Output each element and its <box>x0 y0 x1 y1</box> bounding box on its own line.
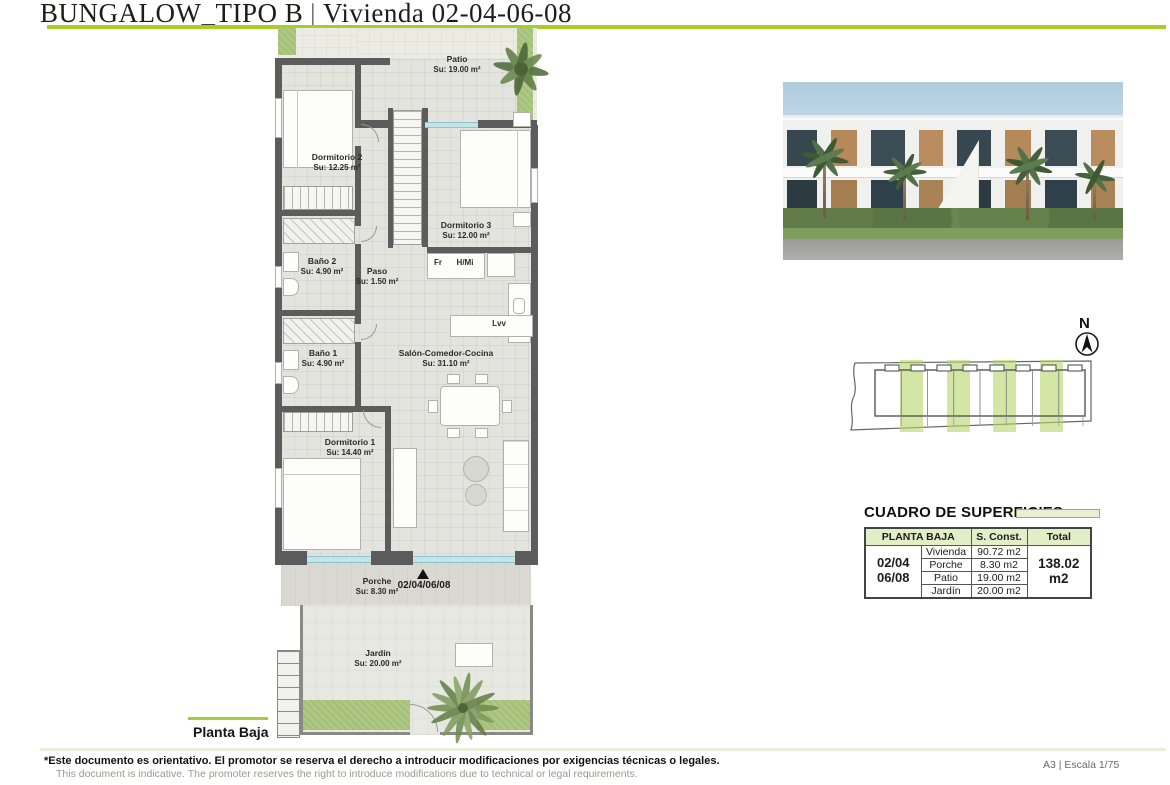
room-label-jardin: JardínSu: 20.00 m² <box>354 648 401 669</box>
site-plan <box>845 358 1097 436</box>
header-planta-baja: PLANTA BAJA <box>865 528 971 545</box>
palm-tree-icon <box>423 668 503 748</box>
wardrobe-dormitorio-1 <box>283 412 353 432</box>
room-label-dormitorio-2: Dormitorio 2Su: 12.25 m² <box>312 152 363 173</box>
appliance-label-fridge: Fr <box>434 258 442 267</box>
pouf <box>465 484 487 506</box>
page-title-unit: Vivienda 02-04-06-08 <box>323 0 572 28</box>
appliance-label-dishwasher: Lvv <box>492 319 506 328</box>
title-separator: | <box>310 0 316 28</box>
floor-plan: PatioSu: 19.00 m² Dormitorio 2Su: 12.25 … <box>275 28 540 748</box>
garden-fence-left <box>300 605 303 735</box>
entrance-marker-icon <box>417 569 429 579</box>
concept-cell: Jardín <box>921 584 971 598</box>
concept-cell: Patio <box>921 571 971 584</box>
chair <box>502 400 512 413</box>
window <box>275 98 282 138</box>
kitchen-appliance-box <box>487 253 515 277</box>
garden-fence-bottom <box>300 732 410 735</box>
disclaimer-en: This document is indicative. The promote… <box>56 768 638 780</box>
total-cell: 138.02 m2 <box>1027 545 1091 598</box>
room-label-paso: PasoSu: 1.50 m² <box>356 266 399 287</box>
room-label-bano-1: Baño 1Su: 4.90 m² <box>302 348 345 369</box>
palm-tree-icon <box>1003 146 1055 186</box>
shower-bano-2 <box>283 218 355 244</box>
window <box>275 266 282 288</box>
room-label-salon: Salón-Comedor-CocinaSu: 31.10 m² <box>399 348 493 369</box>
header-total: Total <box>1027 528 1091 545</box>
value-cell: 8.30 m2 <box>971 558 1027 571</box>
room-label-bano-2: Baño 2Su: 4.90 m² <box>301 256 344 277</box>
wall <box>422 108 428 247</box>
tv-sideboard <box>393 448 417 528</box>
brochure-page: BUNGALOW_TIPO B|Vivienda 02-04-06-08 <box>0 0 1170 785</box>
window <box>275 362 282 384</box>
window <box>531 168 538 203</box>
toilet-bano-2 <box>283 278 299 296</box>
kitchen-sink <box>513 298 525 314</box>
caption-accent-line <box>188 717 268 720</box>
nightstand <box>513 212 531 227</box>
toilet-bano-1 <box>283 376 299 394</box>
header-s-const: S. Const. <box>971 528 1027 545</box>
hall-closet <box>393 110 422 245</box>
wardrobe-dormitorio-2 <box>283 186 353 210</box>
palm-tree-icon <box>799 138 851 178</box>
room-label-porche: PorcheSu: 8.30 m² <box>356 576 399 597</box>
title-underline <box>47 25 1166 29</box>
plan-caption: Planta Baja <box>193 724 268 740</box>
bed-pillow <box>283 90 298 168</box>
sheet-scale-info: A3 | Escala 1/75 <box>1043 759 1119 771</box>
garden-green-left <box>300 700 410 730</box>
palm-tree-icon <box>881 154 929 190</box>
surfaces-title-accent-bar <box>1016 509 1100 518</box>
value-cell: 20.00 m2 <box>971 584 1027 598</box>
window <box>275 468 282 508</box>
disclaimer-es: *Este documento es orientativo. El promo… <box>44 755 720 767</box>
bed-pillow <box>283 458 361 475</box>
sink-bano-2 <box>283 252 299 272</box>
pouf <box>463 456 489 482</box>
chair <box>447 428 460 438</box>
nightstand <box>513 112 531 127</box>
chair <box>475 428 488 438</box>
surfaces-table-header-row: PLANTA BAJA S. Const. Total <box>865 528 1091 545</box>
wall <box>281 210 357 216</box>
value-cell: 19.00 m2 <box>971 571 1027 584</box>
patio-window <box>425 122 478 128</box>
room-label-dormitorio-3: Dormitorio 3Su: 12.00 m² <box>441 220 492 241</box>
porch-pillar <box>275 551 307 565</box>
garden-fence-right <box>530 605 533 735</box>
footer-separator-line <box>40 748 1166 751</box>
sofa <box>503 440 529 532</box>
room-label-dormitorio-1: Dormitorio 1Su: 14.40 m² <box>325 437 376 458</box>
appliance-label-oven-micro: H/Mi <box>457 258 474 267</box>
building-render-photo <box>783 82 1123 260</box>
shower-bano-1 <box>283 318 355 344</box>
porch-pillar <box>515 551 538 565</box>
concept-cell: Porche <box>921 558 971 571</box>
wall <box>355 58 361 128</box>
chair <box>447 374 460 384</box>
concept-cell: Vivienda <box>921 545 971 558</box>
surfaces-table: PLANTA BAJA S. Const. Total 02/04 06/08 … <box>864 527 1092 599</box>
palm-tree-icon <box>1073 160 1117 194</box>
table-row: 02/04 06/08 Vivienda 90.72 m2 138.02 m2 <box>865 545 1091 558</box>
entrance-code-label: 02/04/06/08 <box>398 580 451 591</box>
chair <box>475 374 488 384</box>
wall <box>281 310 357 316</box>
garden-furniture <box>455 643 493 667</box>
photo-road <box>783 239 1123 260</box>
bed-pillow <box>517 130 532 208</box>
sink-bano-1 <box>283 350 299 370</box>
value-cell: 90.72 m2 <box>971 545 1027 558</box>
photo-hedge <box>783 208 1123 230</box>
unit-line-1: 02/04 <box>877 555 910 570</box>
patio-tree-icon <box>488 32 554 106</box>
wall <box>385 406 391 565</box>
room-label-patio: PatioSu: 19.00 m² <box>433 54 480 75</box>
north-compass-icon <box>1073 330 1101 358</box>
chair <box>428 400 438 413</box>
planter-top-left <box>278 28 296 55</box>
page-title-project: BUNGALOW_TIPO B <box>40 0 303 28</box>
unit-line-2: 06/08 <box>877 570 910 585</box>
unit-code-cell: 02/04 06/08 <box>865 545 921 598</box>
exterior-stairs <box>277 650 300 738</box>
porch-pillar <box>371 551 413 565</box>
dining-table <box>440 386 500 426</box>
wall <box>355 342 361 406</box>
wall <box>278 58 390 65</box>
